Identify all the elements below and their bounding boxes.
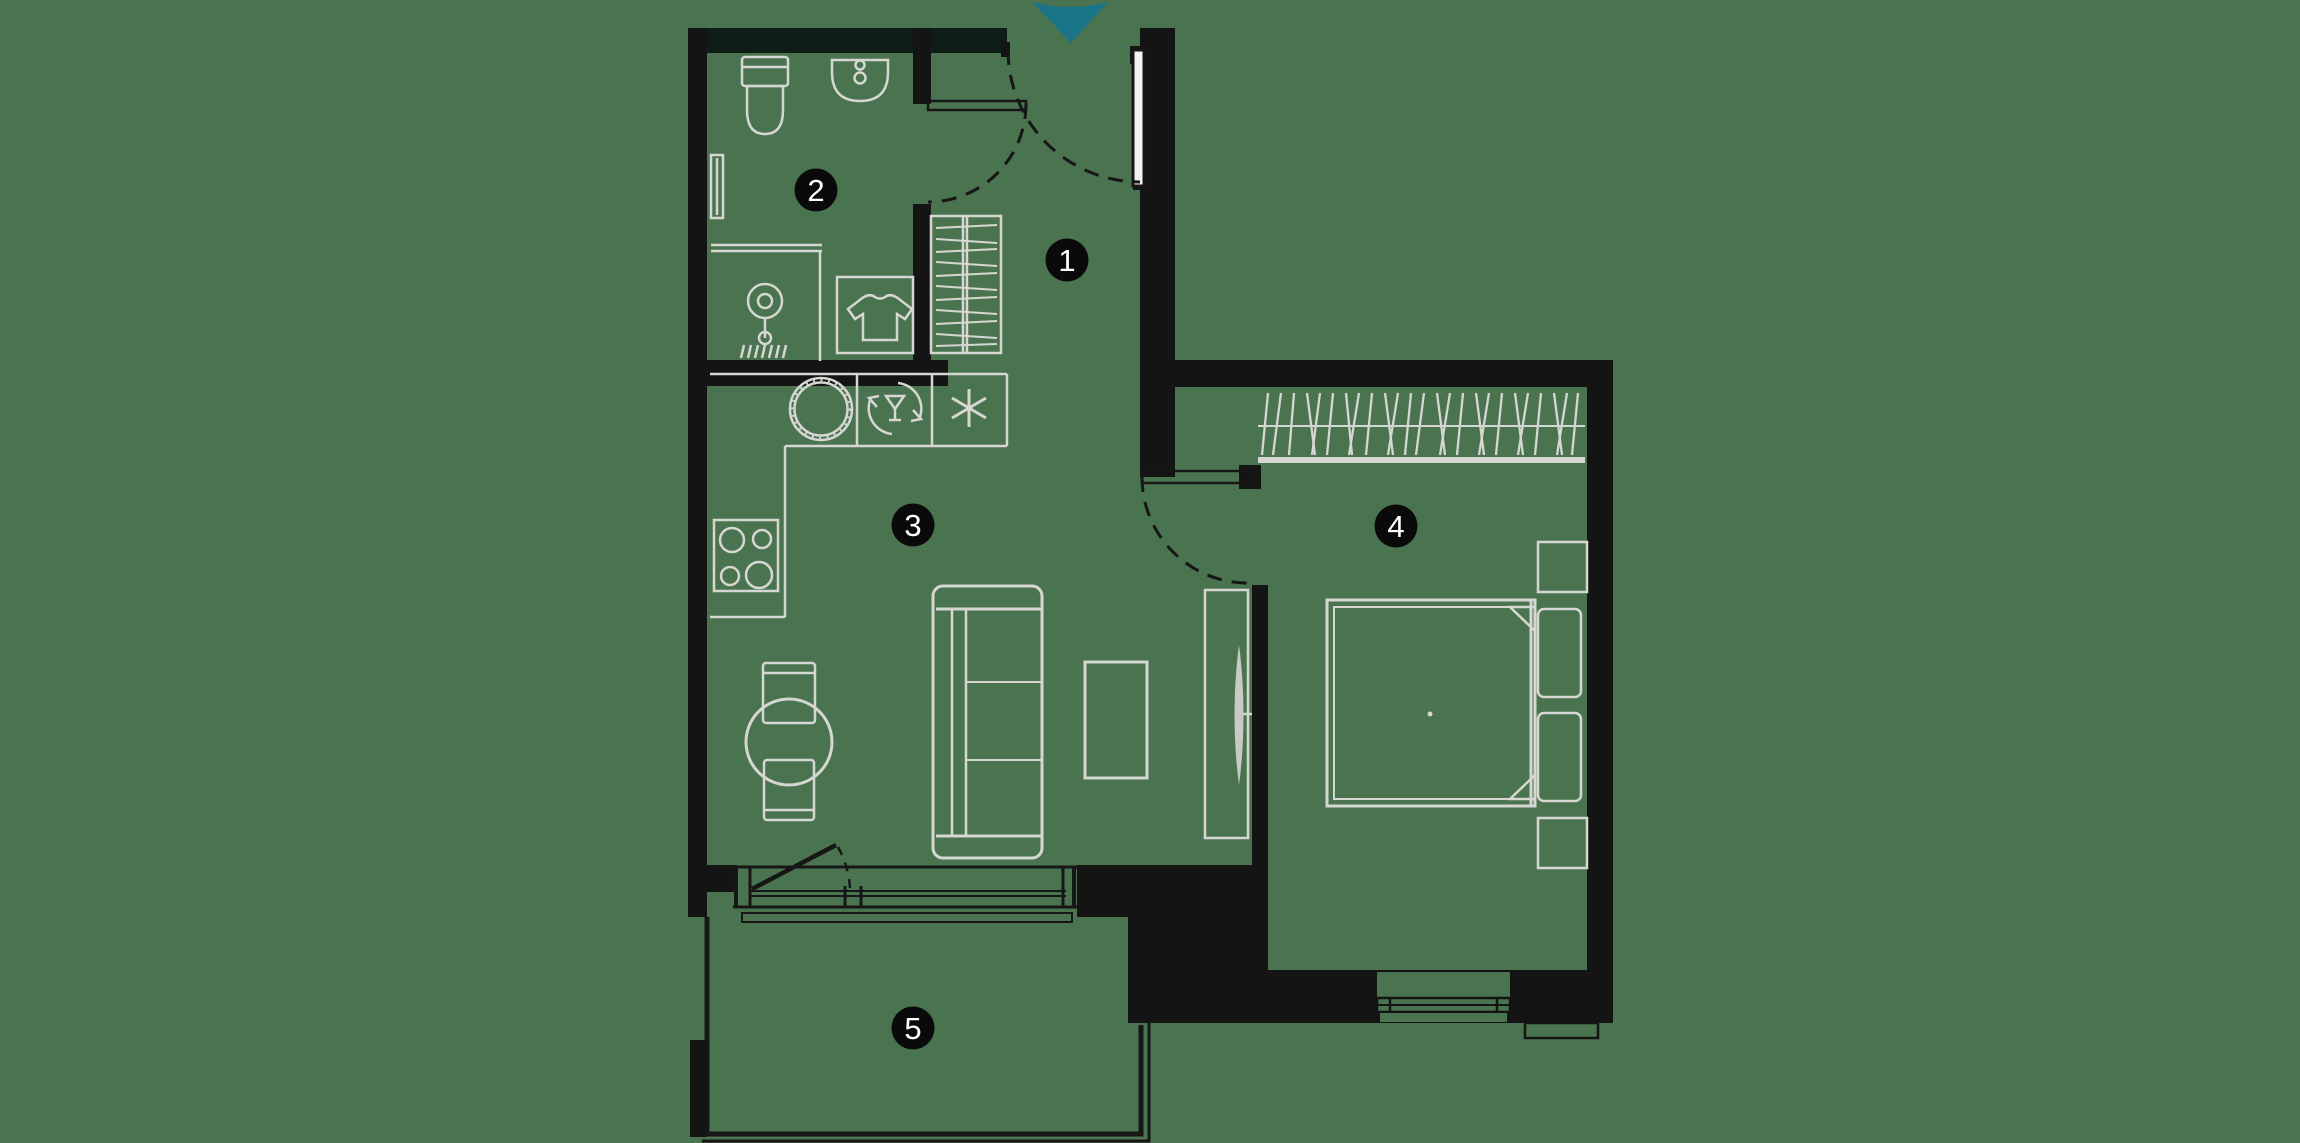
room-number-2: 2 — [807, 173, 824, 208]
floorplan-svg: 1 2 3 4 5 — [0, 0, 2300, 1143]
pillow-bottom — [1538, 713, 1581, 801]
wardrobe-hanger-strokes — [1262, 393, 1578, 455]
room-labels: 1 2 3 4 5 — [795, 169, 1418, 1050]
toilet-icon — [742, 57, 788, 134]
room-label-1: 1 — [1046, 239, 1089, 282]
wall-left — [688, 28, 707, 917]
shower-icon — [711, 245, 822, 361]
wall-bathroom-right-upper — [913, 28, 931, 104]
room-number-1: 1 — [1058, 243, 1075, 278]
nightstand-bottom — [1538, 818, 1587, 868]
room-label-2: 2 — [795, 169, 838, 212]
balcony-window-sill — [742, 913, 1072, 922]
room-number-3: 3 — [904, 508, 921, 543]
room-label-4: 4 — [1375, 505, 1418, 548]
pillow-top — [1538, 609, 1581, 697]
wall-bottom-junction — [1077, 865, 1613, 1023]
room-number-4: 4 — [1387, 509, 1404, 544]
dining-chair-bottom — [764, 760, 814, 820]
tshirt-icon — [848, 295, 912, 340]
room-label-3: 3 — [892, 504, 935, 547]
kitchen-sink-icon — [790, 378, 852, 440]
sofa-icon — [933, 586, 1042, 858]
fridge-snowflake-icon — [952, 389, 986, 427]
wall-living-bottom-left — [688, 865, 737, 892]
bed-icon — [1327, 600, 1581, 806]
wall-bedroom-right — [1587, 360, 1613, 1023]
washing-machine-icon — [837, 277, 913, 353]
room-number-5: 5 — [904, 1011, 921, 1046]
shower-drain-grate — [741, 345, 786, 358]
coffee-table — [1085, 662, 1147, 778]
bedroom-window-sill — [1380, 1013, 1507, 1022]
wall-bedroom-top — [1152, 360, 1613, 387]
entrance-door-swing-arc — [1008, 50, 1140, 182]
entrance-door-leaf — [1133, 50, 1144, 186]
tv-icon — [1235, 645, 1244, 785]
washbasin-icon — [832, 60, 888, 101]
doors — [928, 50, 1252, 583]
nightstand-top — [1538, 542, 1587, 592]
bathroom-door-swing-arc — [928, 104, 1026, 202]
bathroom-door-leaf — [928, 101, 1026, 110]
bedroom-wardrobe — [1258, 393, 1585, 463]
wall-top — [688, 28, 1007, 53]
hallway-closet — [931, 216, 1001, 353]
entrance-arrow-icon — [1032, 2, 1108, 43]
bedroom-door-swing-arc — [1142, 477, 1252, 583]
bedroom-window-outer-sill — [1525, 1023, 1598, 1038]
dining-set — [746, 663, 832, 820]
wall-balcony-left-block — [690, 1040, 707, 1137]
dining-chair-top — [763, 663, 815, 723]
towel-rail — [711, 155, 723, 218]
tv-unit — [1205, 590, 1252, 838]
stove-icon — [714, 520, 778, 591]
wall-partition-living-bedroom — [1252, 585, 1268, 878]
room-label-5: 5 — [892, 1007, 935, 1050]
floorplan-canvas: 1 2 3 4 5 — [0, 0, 2300, 1143]
wall-bathroom-right-lower — [913, 204, 931, 362]
dishwasher-icon — [869, 383, 922, 434]
dining-table-icon — [746, 699, 832, 785]
kitchen-counter — [710, 374, 1007, 617]
